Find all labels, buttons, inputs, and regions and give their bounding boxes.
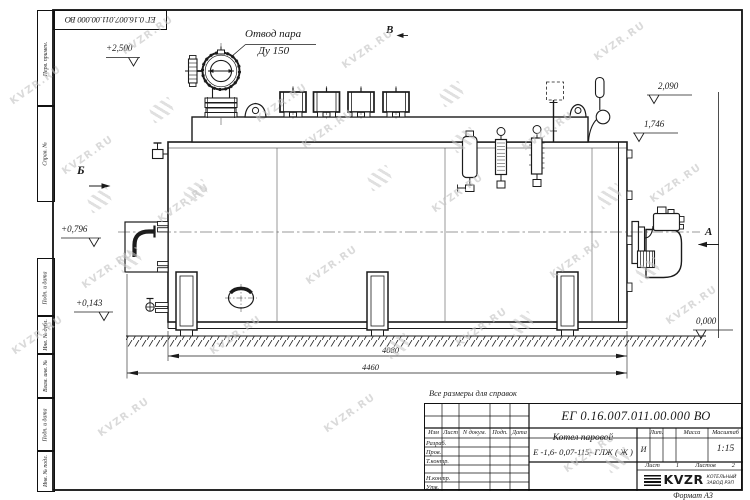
col-ndocum: N докум. <box>459 428 490 438</box>
callout-dn150: Ду 150 <box>258 46 289 57</box>
view-label-b: Б <box>77 164 85 176</box>
lit-value: И <box>637 438 650 462</box>
pressure-gauge <box>589 78 610 142</box>
margin-box-perv-primen: Перв. примен. <box>37 10 55 107</box>
scale-value: 1:15 <box>708 438 743 462</box>
margin-box-inv-dubl: Инв. № дубл. <box>37 315 55 355</box>
elevation-2500: +2,500 <box>106 44 132 53</box>
callout-steam-outlet: Отвод пара <box>245 29 301 40</box>
company-subtitle: КОТЕЛЬНЫЙ ЗАВОД РЭП <box>707 475 737 486</box>
doc-number: ЕГ 0.16.007.011.00.000 ВО <box>529 404 743 428</box>
format-note: Формат А3 <box>648 492 738 500</box>
margin-box-podp-data-1: Подп. и дата <box>37 258 55 317</box>
row-razrab: Разраб. <box>426 441 446 447</box>
company-logo-cell: KVZR КОТЕЛЬНЫЙ ЗАВОД РЭП <box>637 470 743 491</box>
row-prov: Пров. <box>426 450 441 456</box>
top-reference-stamp: ЕГ 0.16.007.011.00.000 ВО <box>53 10 167 30</box>
top-stamp-number: ЕГ 0.16.007.011.00.000 ВО <box>65 15 156 25</box>
lit-label: Лит. <box>637 428 676 438</box>
elevation-0796: +0,796 <box>61 225 87 234</box>
col-izm: Изм <box>425 428 442 438</box>
view-label-v: В <box>386 25 393 36</box>
col-data: Дата <box>510 428 529 438</box>
dimension-4460: 4460 <box>362 363 379 372</box>
sheet-value: 1 <box>676 463 679 469</box>
steam-valve <box>185 43 240 127</box>
reference-note: Все размеры для справок <box>429 390 517 398</box>
row-nkontr: Н.контр. <box>426 476 450 482</box>
mass-label: Масса <box>676 428 708 438</box>
margin-box-podp-data-2: Подп. и дата <box>37 397 55 452</box>
margin-box-vzam-inv: Взам. инв. № <box>37 353 55 399</box>
product-name: Котел паровой <box>529 432 637 446</box>
view-label-a: А <box>705 227 712 238</box>
title-block: ЕГ 0.16.007.011.00.000 ВО Изм Лист N док… <box>424 403 742 490</box>
top-hatches <box>280 86 409 119</box>
drum-deck <box>192 117 588 142</box>
margin-box-sprav-no: Справ. № <box>37 105 55 202</box>
margin-box-inv-podl: Инв. № подл. <box>37 450 55 492</box>
ground-hatch <box>126 336 706 347</box>
rear-wall-fan-unit <box>627 150 684 292</box>
col-podp: Подп. <box>490 428 510 438</box>
sheet-row: Лист 1 Листов 2 <box>637 462 743 470</box>
col-list: Лист <box>442 428 459 438</box>
company-name: KVZR <box>664 474 704 487</box>
drawing-sheet: ЕГ 0.16.007.011.00.000 ВО Перв. примен. … <box>0 0 750 500</box>
elevation-1746: 1,746 <box>644 120 664 129</box>
elevation-0000: 0,000 <box>696 317 716 326</box>
kvzr-logo-icon <box>644 475 661 486</box>
row-tkontr: Т.контр. <box>426 459 449 465</box>
sheets-label: Листов <box>695 463 716 469</box>
sheets-value: 2 <box>732 463 735 469</box>
boiler-side-view <box>61 33 733 379</box>
row-utv: Утв. <box>426 485 439 491</box>
scale-label: Масштаб <box>708 428 743 438</box>
elevation-0143: +0,143 <box>76 299 102 308</box>
dimension-4080: 4080 <box>382 346 399 355</box>
elevation-2090: 2,090 <box>658 82 678 91</box>
sheet-label: Лист <box>645 463 660 469</box>
product-designation: Е -1,6- 0,07-115- ГЛЖ ( Ж ) <box>529 445 637 459</box>
